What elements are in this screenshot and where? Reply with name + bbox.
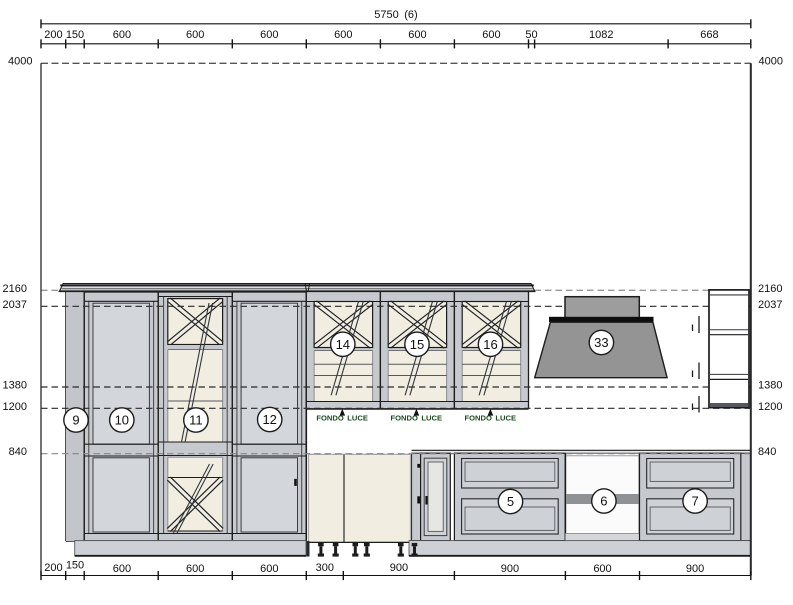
svg-text:11: 11: [189, 413, 203, 428]
svg-text:15: 15: [410, 337, 424, 352]
svg-text:4000: 4000: [8, 56, 32, 68]
svg-text:33: 33: [594, 335, 608, 350]
svg-text:14: 14: [336, 337, 350, 352]
svg-text:LUCE: LUCE: [495, 413, 516, 422]
svg-text:6: 6: [600, 494, 607, 509]
svg-text:5: 5: [507, 494, 514, 509]
svg-text:9: 9: [72, 413, 79, 428]
svg-text:5750 (6): 5750 (6): [374, 9, 417, 21]
svg-text:150: 150: [66, 29, 84, 41]
svg-text:4000: 4000: [759, 56, 783, 68]
svg-text:7: 7: [691, 494, 698, 509]
svg-text:600: 600: [593, 563, 611, 575]
svg-text:600: 600: [334, 29, 352, 41]
svg-text:200: 200: [44, 29, 62, 41]
svg-text:600: 600: [408, 29, 426, 41]
svg-text:900: 900: [686, 563, 704, 575]
svg-text:840: 840: [758, 446, 776, 458]
svg-text:600: 600: [186, 29, 204, 41]
svg-text:900: 900: [501, 563, 519, 575]
svg-text:600: 600: [113, 29, 131, 41]
svg-text:LUCE: LUCE: [347, 413, 368, 422]
svg-text:600: 600: [113, 563, 131, 575]
svg-text:900: 900: [390, 562, 408, 574]
svg-text:LUCE: LUCE: [421, 413, 442, 422]
svg-text:668: 668: [700, 29, 718, 41]
svg-text:1380: 1380: [3, 380, 27, 392]
svg-text:2037: 2037: [758, 299, 782, 311]
svg-text:2160: 2160: [3, 283, 27, 295]
svg-text:2037: 2037: [3, 299, 27, 311]
svg-text:1082: 1082: [589, 29, 613, 41]
svg-text:2160: 2160: [758, 283, 782, 295]
svg-text:600: 600: [186, 563, 204, 575]
svg-text:50: 50: [525, 29, 537, 41]
svg-text:FONDO: FONDO: [390, 413, 418, 422]
svg-text:150: 150: [66, 560, 84, 572]
svg-text:10: 10: [115, 413, 129, 428]
svg-text:600: 600: [260, 29, 278, 41]
svg-text:16: 16: [483, 337, 497, 352]
svg-text:300: 300: [316, 562, 334, 574]
svg-text:12: 12: [262, 412, 276, 427]
svg-text:600: 600: [482, 29, 500, 41]
svg-text:FONDO: FONDO: [316, 413, 344, 422]
svg-text:FONDO: FONDO: [464, 413, 492, 422]
svg-text:840: 840: [9, 446, 27, 458]
svg-text:1200: 1200: [3, 401, 27, 413]
svg-text:1380: 1380: [758, 380, 782, 392]
svg-text:1200: 1200: [758, 401, 782, 413]
svg-text:600: 600: [260, 563, 278, 575]
svg-text:200: 200: [44, 562, 62, 574]
